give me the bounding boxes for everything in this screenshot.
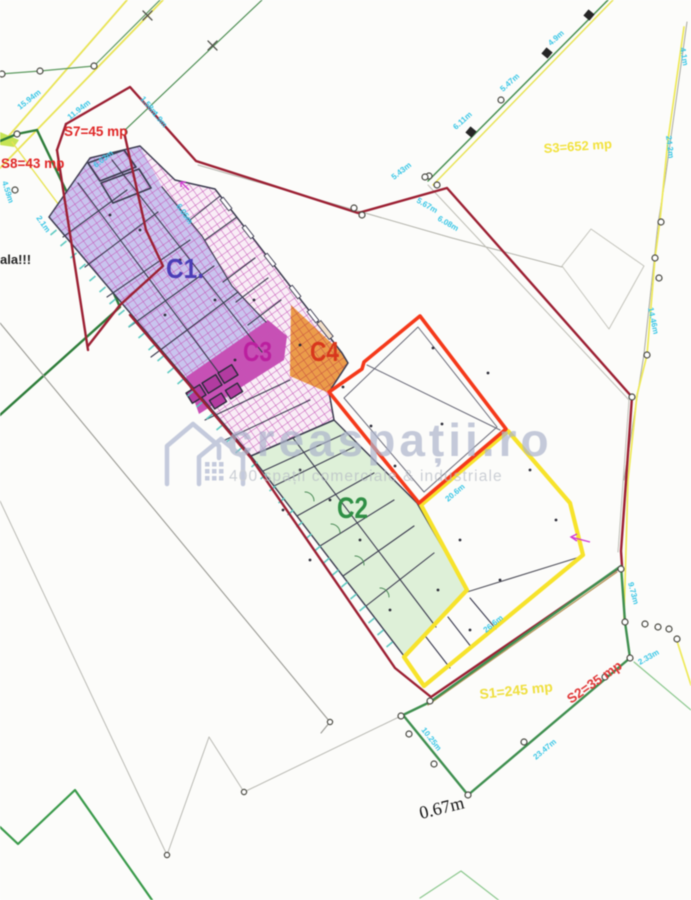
svg-text:ala!!!: ala!!!: [0, 252, 31, 267]
svg-text:creaspații.ro: creaspații.ro: [227, 414, 553, 467]
svg-text:400 spații comerciale & indust: 400 spații comerciale & industriale: [229, 468, 503, 485]
svg-text:C2: C2: [337, 492, 368, 525]
svg-text:C1.: C1.: [166, 253, 204, 284]
svg-text:S7=45 mp: S7=45 mp: [64, 124, 127, 139]
svg-text:S8=43 mp: S8=43 mp: [1, 156, 64, 171]
svg-text:C4: C4: [310, 336, 339, 367]
svg-text:C3: C3: [243, 336, 272, 367]
